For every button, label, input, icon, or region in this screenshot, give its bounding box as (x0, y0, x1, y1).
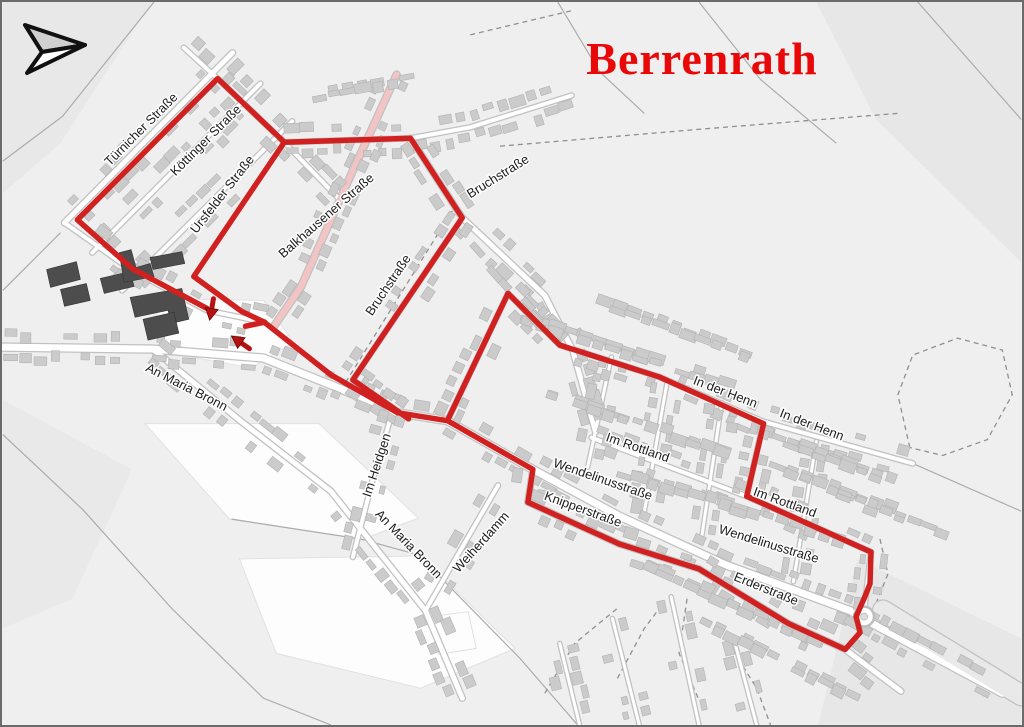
building (708, 525, 716, 535)
building (873, 587, 882, 595)
building (648, 397, 658, 408)
building (94, 334, 107, 343)
building (300, 122, 314, 132)
building (800, 563, 812, 576)
building (111, 331, 120, 341)
building (51, 351, 59, 362)
building (20, 353, 32, 362)
building (284, 123, 300, 133)
building (438, 114, 452, 125)
building (455, 112, 465, 122)
building (726, 422, 738, 433)
route-arrow-stub (212, 299, 214, 309)
building (446, 138, 455, 149)
building (668, 661, 677, 670)
building (95, 356, 105, 365)
building (848, 583, 857, 592)
building (212, 338, 228, 349)
building (317, 148, 327, 154)
building (703, 403, 714, 414)
building (414, 400, 431, 412)
building (799, 458, 809, 468)
building (5, 329, 17, 337)
building (640, 705, 651, 716)
building (332, 124, 342, 132)
building (182, 358, 195, 365)
map-page: Türnicher StraßeKöttinger StraßeUrsfelde… (0, 0, 1024, 727)
building (168, 359, 179, 369)
building (213, 360, 223, 368)
building (392, 148, 402, 159)
map-canvas: Türnicher StraßeKöttinger StraßeUrsfelde… (2, 2, 1022, 725)
building (302, 149, 313, 158)
building (287, 148, 298, 154)
building (644, 412, 650, 421)
building (372, 81, 384, 93)
north-arrow-icon (10, 10, 94, 80)
building (64, 334, 78, 340)
building (592, 373, 601, 382)
building (854, 567, 861, 579)
building (4, 354, 18, 361)
building (458, 133, 470, 143)
building (712, 510, 720, 521)
roundabout-island (861, 613, 868, 620)
route-line (245, 322, 264, 326)
map-title: Berrenrath (542, 32, 862, 85)
building (706, 419, 714, 430)
building (363, 150, 371, 157)
building (392, 125, 401, 132)
building (792, 486, 804, 497)
building (880, 554, 888, 569)
building (21, 333, 31, 344)
building (34, 357, 47, 366)
building (387, 79, 398, 90)
building (638, 457, 645, 466)
building (333, 143, 341, 153)
building (860, 554, 866, 563)
building (110, 357, 119, 364)
building (81, 353, 90, 360)
building (692, 506, 701, 520)
building (594, 448, 605, 459)
building (511, 467, 523, 483)
building (241, 364, 255, 370)
building (696, 462, 704, 473)
